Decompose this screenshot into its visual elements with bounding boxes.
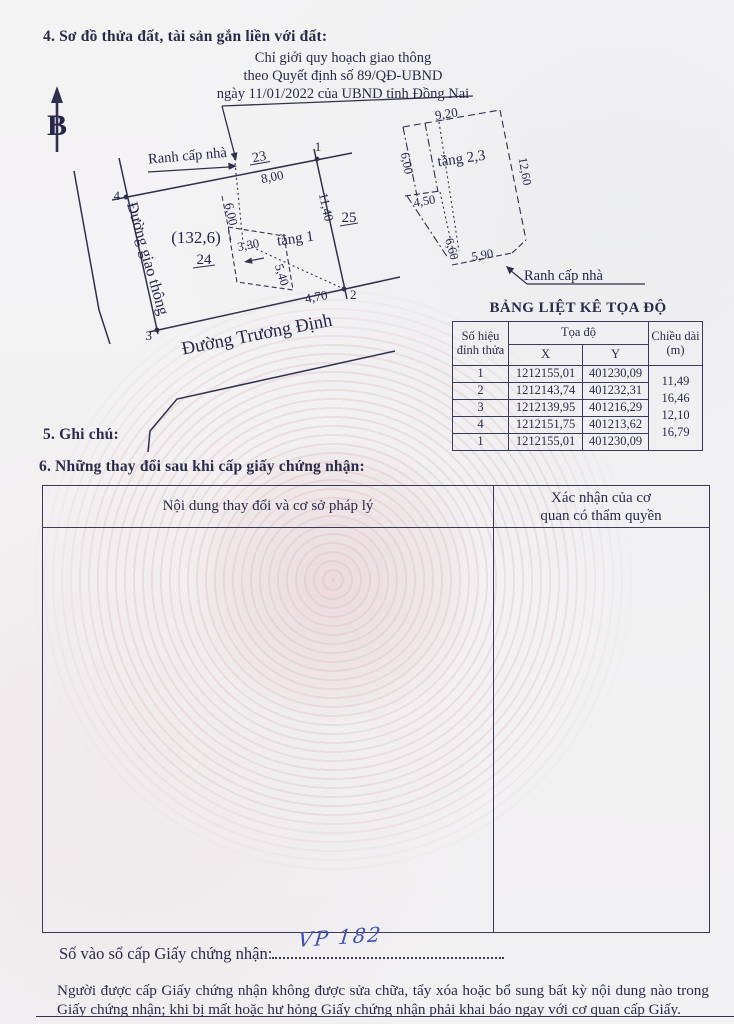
floor1-label: tầng 1 (276, 229, 315, 250)
area-label: (132,6) (171, 228, 221, 247)
registry-line: Số vào sổ cấp Giấy chứng nhận:VP 182 (59, 941, 504, 964)
registry-number-handwritten: VP 182 (297, 922, 384, 952)
street-giao-thong-label: Đường giao thông (123, 200, 172, 317)
street-truong-dinh-label: Đường Trương Định (180, 311, 334, 360)
corner-3-label: 3 (146, 328, 153, 343)
len-3-30: 3,30 (236, 236, 260, 254)
b-len-12-60: 12,60 (516, 156, 535, 186)
row1-point: 1 (453, 365, 508, 382)
b-len-5-90: 5,90 (470, 246, 494, 264)
col-header-coords: Tọa độ (508, 322, 648, 344)
row2-y: 401232,31 (582, 382, 648, 399)
col-header-confirm: Xác nhận của cơ quan có thẩm quyền (493, 486, 709, 527)
row3-y: 401216,29 (582, 399, 648, 416)
len-left-inner: 6,00 (222, 201, 241, 226)
col-header-content: Nội dung thay đổi và cơ sở pháp lý (43, 486, 493, 527)
col-header-x: X (508, 344, 582, 365)
registry-label: Số vào sổ cấp Giấy chứng nhận: (59, 944, 272, 963)
row5-x: 1212155,01 (508, 433, 582, 450)
b-len-9-20: 9,20 (434, 104, 459, 122)
row5-point: 1 (453, 433, 508, 450)
road-edge-left (74, 171, 110, 344)
setback-right-label: Ranh cấp nhà (524, 268, 603, 284)
changes-table: Nội dung thay đổi và cơ sở pháp lý Xác n… (42, 485, 710, 933)
row1-x: 1212155,01 (508, 365, 582, 382)
row4-y: 401213,62 (582, 416, 648, 433)
row4-x: 1212151,75 (508, 416, 582, 433)
col-header-y: Y (582, 344, 648, 365)
changes-table-divider (493, 486, 494, 932)
road-edge-bottom (148, 351, 395, 452)
col-header-length: Chiều dài (m) (648, 322, 702, 365)
length-2: 16,46 (649, 392, 702, 405)
coord-table: Số hiệu đỉnh thửa Tọa độ X Y Chiều dài (… (452, 321, 703, 451)
registry-dotted-line: VP 182 (272, 941, 504, 959)
planning-leader-line (222, 96, 473, 106)
floor23-label: tầng 2,3 (436, 148, 486, 171)
row1-y: 401230,09 (582, 365, 648, 382)
setback-left-label: Ranh cấp nhà (147, 145, 228, 168)
row3-x: 1212139,95 (508, 399, 582, 416)
row2-x: 1212143,74 (508, 382, 582, 399)
len-top: 8,00 (260, 167, 285, 186)
length-3: 12,10 (649, 409, 702, 422)
b-len-4-50: 4,50 (412, 192, 436, 209)
len-4-70: 4,70 (304, 287, 329, 306)
length-values-cell: 11,49 16,46 12,10 16,79 (648, 365, 702, 450)
b-len-6-00: 6,00 (398, 151, 416, 175)
section6-title: 6. Những thay đổi sau khi cấp giấy chứng… (39, 458, 365, 476)
corner-1-label: 1 (315, 139, 322, 154)
coord-table-title: BẢNG LIỆT KÊ TỌA ĐỘ (452, 300, 704, 317)
len-5-40: 5,40 (272, 262, 292, 287)
row3-point: 3 (453, 399, 508, 416)
footer-note: Người được cấp Giấy chứng nhận không đượ… (57, 981, 709, 1019)
corner-2-label: 2 (350, 287, 357, 302)
b-len-6-60: 6,60 (442, 236, 461, 261)
row4-point: 4 (453, 416, 508, 433)
bottom-rule (36, 1016, 734, 1017)
north-arrow-icon: B (47, 86, 67, 152)
len-right: 11,40 (316, 191, 337, 222)
certificate-page: 4. Sơ đồ thửa đất, tài sản gắn liền với … (0, 0, 734, 1024)
floor23-outline (403, 110, 526, 265)
row5-y: 401230,09 (582, 433, 648, 450)
col-header-point: Số hiệu đỉnh thửa (453, 322, 508, 365)
corner-4-label: 4 (114, 188, 121, 203)
length-1: 11,49 (649, 375, 702, 388)
length-4: 16,79 (649, 426, 702, 439)
section5-title: 5. Ghi chú: (43, 426, 119, 444)
row2-point: 2 (453, 382, 508, 399)
